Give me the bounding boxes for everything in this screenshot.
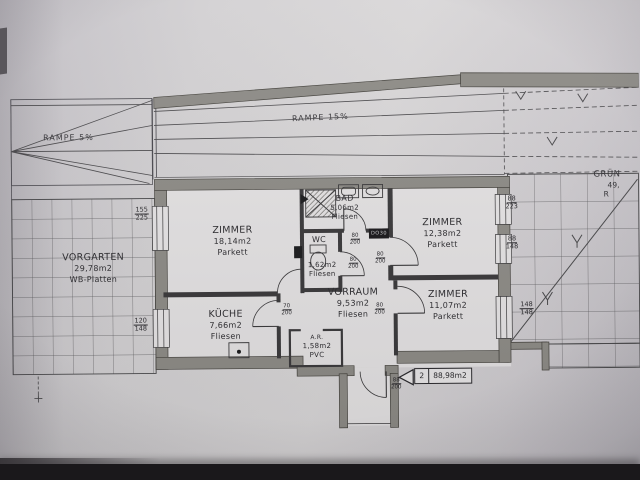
- plan-labels: RAMPE 5% RAMPE 15% VORGARTEN 29,78m2 WB-…: [0, 0, 640, 480]
- rampe5-label: RAMPE 5%: [43, 133, 94, 142]
- photo-edge-shadow: [0, 27, 7, 74]
- bad-equipment-tag: DO30: [369, 228, 389, 238]
- room-abstellraum: A.R. 1,58m2 PVC: [292, 334, 342, 360]
- unit-total-area: 88,98m2: [429, 369, 471, 383]
- door-dim-zimmer3: 80 200: [371, 302, 389, 315]
- room-wc-name: WC: [306, 235, 332, 246]
- room-kueche: KÜCHE 7,66m2 Fliesen: [176, 308, 276, 342]
- unit-number: 2: [415, 369, 429, 383]
- room-zimmer-3: ZIMMER 11,07m2 Parkett: [395, 288, 500, 322]
- window-dim-right-bottom: 148 148: [515, 301, 539, 316]
- room-zimmer-2: ZIMMER 12,38m2 Parkett: [390, 216, 495, 250]
- window-dim-left-bottom: 120 148: [129, 317, 153, 332]
- door-dim-bad: 80 200: [346, 233, 364, 246]
- window-dim-right-mid: 88 148: [500, 235, 524, 250]
- photo-bottom-bar: [0, 464, 640, 480]
- door-dim-wc: 80 200: [344, 257, 362, 270]
- room-gruenflaeche: GRÜN 49, R: [593, 169, 620, 199]
- window-dim-left-top: 155 225: [130, 206, 154, 221]
- room-bad: BAD 5,06m2 Fliesen: [312, 193, 378, 222]
- floor-plan-photo: RAMPE 5% RAMPE 15% VORGARTEN 29,78m2 WB-…: [0, 0, 640, 480]
- unit-area-tag: 2 88,98m2: [414, 368, 472, 385]
- door-dim-kueche: 70 200: [278, 303, 296, 316]
- door-dim-zimmer2: 80 200: [371, 251, 389, 264]
- floor-plan: RAMPE 5% RAMPE 15% VORGARTEN 29,78m2 WB-…: [0, 0, 640, 480]
- room-vorgarten: VORGARTEN 29,78m2 WB-Platten: [38, 252, 148, 286]
- room-wc-data: 1,62m2 Fliesen: [296, 261, 348, 280]
- window-dim-right-top: 88 223: [500, 195, 524, 210]
- door-dim-entry: 88 200: [387, 377, 405, 390]
- rampe15-label: RAMPE 15%: [292, 112, 349, 123]
- room-zimmer-1: ZIMMER 18,14m2 Parkett: [180, 224, 285, 258]
